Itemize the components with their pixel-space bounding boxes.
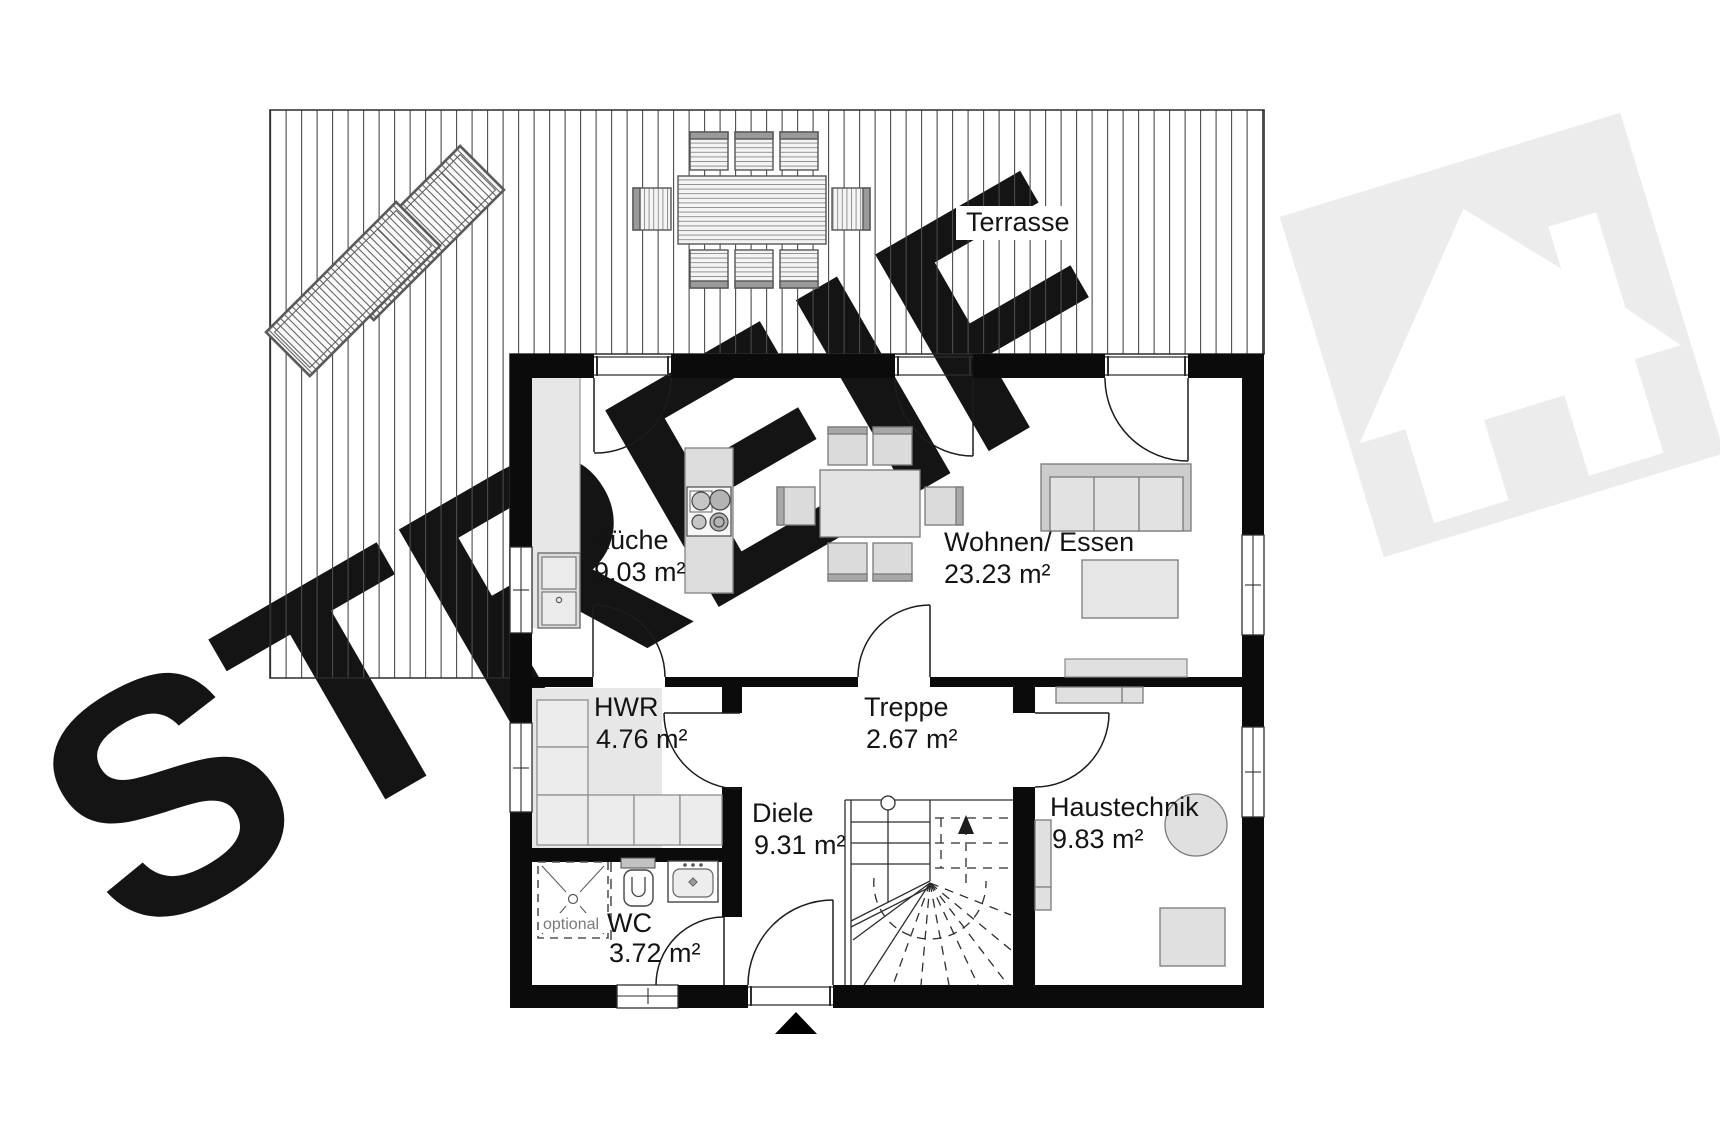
room-label-kueche: Küche: [592, 525, 669, 555]
sofa: [1041, 464, 1191, 531]
interior-wall: [1013, 787, 1035, 985]
terrace-chair-backrest: [690, 281, 728, 288]
terrace-chair-backrest: [633, 188, 640, 230]
washbasin: [668, 861, 718, 902]
window-wc: [617, 985, 678, 1008]
room-area-kueche: 9.03 m²: [594, 557, 686, 587]
wall: [1242, 354, 1264, 535]
dining-table: [820, 470, 920, 537]
wall: [1242, 635, 1264, 727]
room-label-hwr: HWR: [594, 692, 658, 722]
wall-unit: [1035, 820, 1051, 910]
chair-backrest: [873, 574, 912, 581]
window-wohnen: [1242, 535, 1264, 635]
room-label-wc: WC: [607, 908, 652, 938]
terrace-chair-backrest: [863, 188, 870, 230]
terrace-chair-backrest: [780, 132, 818, 139]
wall: [671, 354, 895, 378]
room-area-wc: 3.72 m²: [609, 938, 701, 968]
room-area-haustechnik: 9.83 m²: [1052, 824, 1144, 854]
kitchen-island: [685, 448, 733, 593]
window-haustechnik: [1242, 727, 1264, 817]
coffee-table: [1082, 560, 1178, 618]
wall: [510, 985, 617, 1008]
room-label-diele: Diele: [752, 798, 814, 828]
toilet: [621, 858, 655, 906]
terrace-chair-backrest: [690, 132, 728, 139]
terrace-label: Terrasse: [966, 207, 1070, 237]
chair-backrest: [828, 427, 867, 434]
terrace-chair-backrest: [735, 281, 773, 288]
equipment-unit: [1160, 908, 1225, 966]
sideboard: [1065, 659, 1187, 677]
room-label-treppe: Treppe: [864, 692, 949, 722]
chair-backrest: [777, 487, 784, 525]
room-area-wohnen: 23.23 m²: [944, 559, 1051, 589]
window-hwr: [510, 723, 532, 812]
chair-backrest: [828, 574, 867, 581]
shelf: [1056, 687, 1143, 703]
interior-wall: [722, 687, 742, 713]
optional-label: optional: [543, 916, 599, 933]
window-kitchen: [510, 547, 532, 633]
terrace-chair-backrest: [735, 132, 773, 139]
wall: [510, 633, 532, 723]
terrace-chair-backrest: [780, 281, 818, 288]
wall: [510, 354, 532, 547]
interior-wall: [1013, 687, 1035, 713]
terrace-table: [678, 176, 826, 244]
room-label-wohnen: Wohnen/ Essen: [944, 527, 1134, 557]
interior-wall: [930, 677, 1242, 687]
chair-backrest: [873, 427, 912, 434]
wall: [833, 985, 1264, 1008]
wall: [973, 354, 1105, 378]
wall: [678, 985, 748, 1008]
room-area-diele: 9.31 m²: [754, 830, 846, 860]
interior-wall: [532, 677, 593, 687]
interior-wall: [665, 677, 858, 687]
kitchen-sink-unit: [538, 553, 580, 628]
room-label-haustechnik: Haustechnik: [1050, 792, 1199, 822]
floor-plan-page: STREIF: [0, 0, 1720, 1147]
room-area-treppe: 2.67 m²: [866, 724, 958, 754]
chair-backrest: [956, 487, 963, 525]
wall: [1242, 817, 1264, 1008]
wall: [510, 812, 532, 1008]
floor-plan-canvas: STREIF: [0, 0, 1720, 1147]
room-area-hwr: 4.76 m²: [596, 724, 688, 754]
